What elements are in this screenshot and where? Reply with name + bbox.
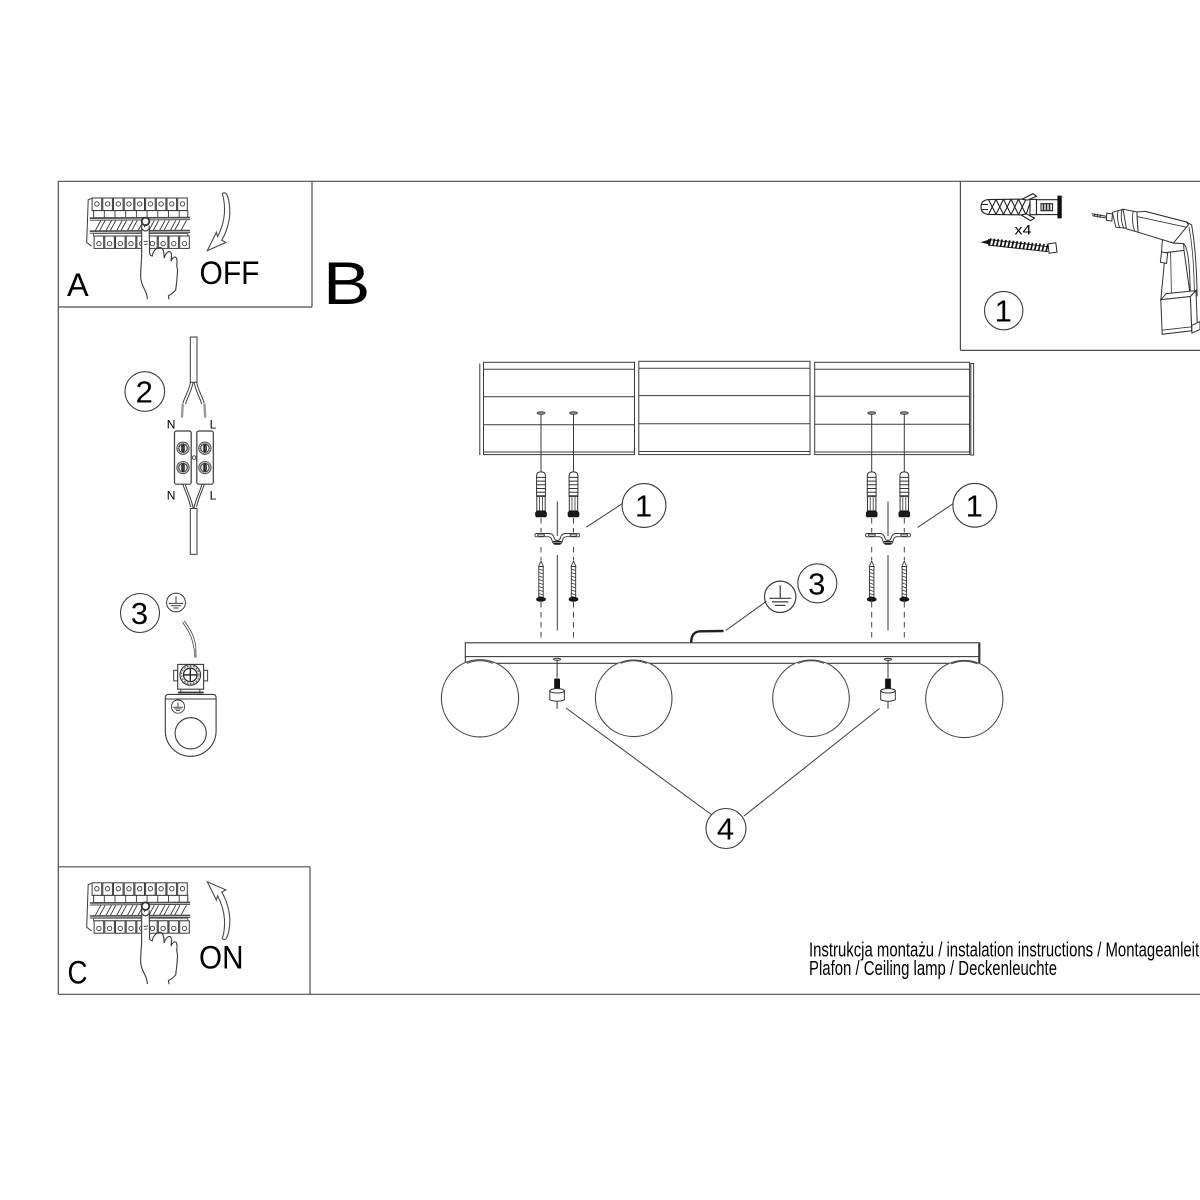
svg-text:ON: ON	[199, 939, 244, 975]
svg-text:3: 3	[808, 566, 825, 601]
svg-text:1: 1	[635, 489, 652, 524]
svg-text:4: 4	[717, 812, 734, 847]
svg-text:C: C	[68, 954, 88, 990]
svg-text:L: L	[210, 489, 217, 503]
svg-text:x4: x4	[1015, 223, 1032, 238]
svg-text:OFF: OFF	[200, 255, 260, 291]
svg-text:1: 1	[966, 488, 983, 523]
svg-text:3: 3	[131, 596, 148, 631]
svg-text:L: L	[210, 418, 217, 432]
svg-text:1: 1	[995, 294, 1012, 329]
svg-text:Plafon / Ceiling lamp / Decken: Plafon / Ceiling lamp / Deckenleuchte	[809, 958, 1057, 980]
svg-text:N: N	[167, 418, 176, 432]
svg-text:B: B	[323, 249, 370, 316]
svg-text:2: 2	[136, 375, 153, 410]
svg-text:N: N	[167, 489, 176, 503]
svg-text:A: A	[67, 267, 89, 303]
